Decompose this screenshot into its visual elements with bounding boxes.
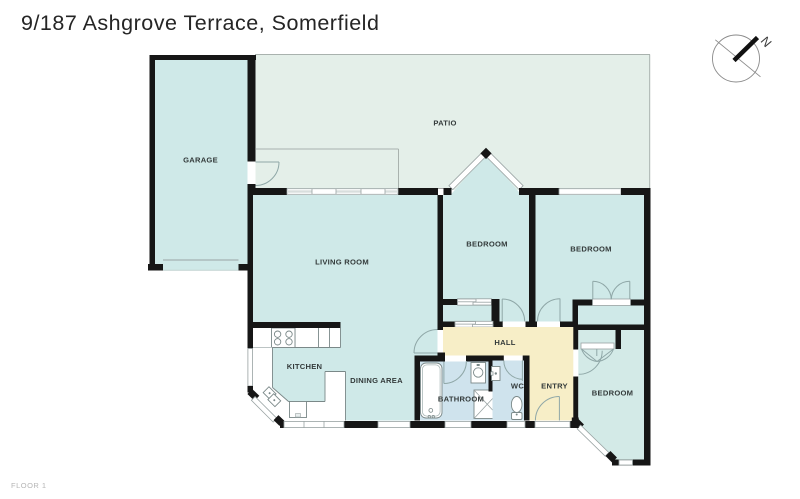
svg-text:HALL: HALL [494, 338, 515, 347]
svg-text:PATIO: PATIO [433, 119, 456, 128]
svg-text:WC: WC [511, 382, 524, 391]
svg-text:GARAGE: GARAGE [183, 156, 218, 165]
svg-text:KITCHEN: KITCHEN [287, 362, 323, 371]
svg-text:9/187 Ashgrove Terrace, Somerf: 9/187 Ashgrove Terrace, Somerfield [21, 11, 379, 35]
svg-text:N: N [758, 34, 775, 50]
svg-text:BATHROOM: BATHROOM [438, 395, 484, 404]
svg-text:BEDROOM: BEDROOM [570, 245, 611, 254]
svg-text:BEDROOM: BEDROOM [592, 389, 633, 398]
svg-text:FLOOR 1: FLOOR 1 [11, 481, 47, 490]
svg-text:BEDROOM: BEDROOM [466, 240, 507, 249]
svg-text:ENTRY: ENTRY [541, 382, 568, 391]
svg-text:LIVING ROOM: LIVING ROOM [315, 258, 369, 267]
svg-text:DINING AREA: DINING AREA [350, 376, 403, 385]
